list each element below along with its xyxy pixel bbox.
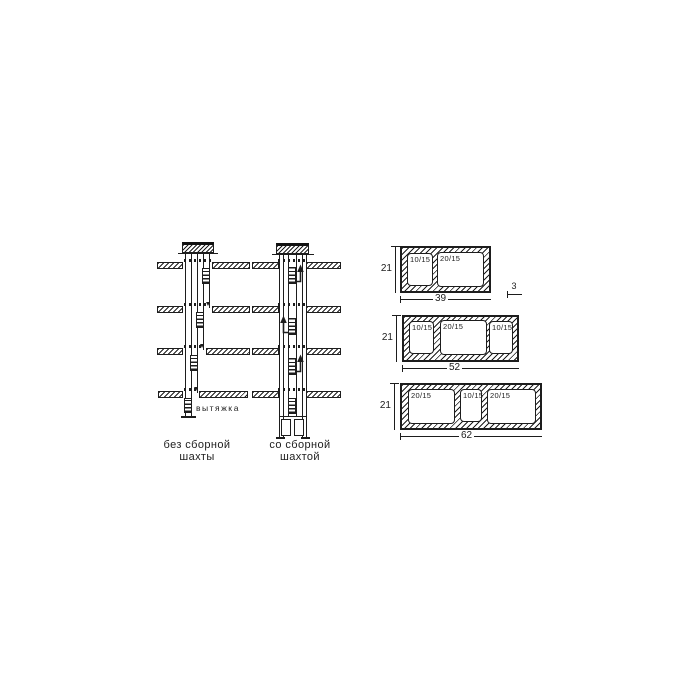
floor-slab <box>212 306 250 313</box>
duct-line <box>185 253 186 417</box>
exhaust-duct-end <box>181 416 196 418</box>
damper-hatch <box>288 398 296 414</box>
floor-slab <box>306 391 341 398</box>
floor-slab <box>252 391 279 398</box>
width-dimension-label: 62 <box>459 430 474 441</box>
airflow-arrow-icon <box>295 264 306 283</box>
vent-block-body: 10/15 20/15 10/15 <box>402 315 519 362</box>
left-shaft-caption-line2: шахты <box>147 451 247 463</box>
duct-joint-marks <box>278 303 308 306</box>
roof-cap <box>276 243 309 254</box>
floor-slab <box>306 348 341 355</box>
channel-size-label: 10/15 <box>410 255 430 264</box>
left-shaft-caption: без сборной шахты <box>147 439 247 463</box>
duct-joint-marks <box>184 345 204 348</box>
width-dimension-label: 52 <box>447 362 462 373</box>
floor-slab <box>306 262 341 269</box>
airflow-arrow-icon <box>278 315 289 334</box>
width-dimension-label: 39 <box>433 293 448 304</box>
floor-slab <box>206 348 250 355</box>
channel-opening: 10/15 <box>489 321 513 354</box>
exhaust-label: вытяжка <box>196 403 240 413</box>
height-dimension-line <box>395 246 396 293</box>
damper-hatch <box>202 268 210 284</box>
channel-opening: 10/15 <box>460 389 482 422</box>
base-chamber <box>294 419 304 436</box>
height-dimension-line <box>396 315 397 362</box>
channel-opening: 10/15 <box>407 253 433 286</box>
duct-joint-marks <box>184 388 198 391</box>
channel-size-label: 20/15 <box>490 391 510 400</box>
channel-size-label: 10/15 <box>492 323 512 332</box>
duct-joint-marks <box>184 259 212 262</box>
height-dimension-label: 21 <box>372 263 394 274</box>
channel-opening: 20/15 <box>408 389 455 424</box>
floor-slab <box>252 262 279 269</box>
height-dimension-label: 21 <box>371 400 393 411</box>
vent-block-body: 20/15 10/15 20/15 <box>400 383 542 430</box>
floor-slab <box>199 391 248 398</box>
right-shaft-caption-line2: шахтой <box>252 451 348 463</box>
figure-canvas: вытяжка без сборной шахты <box>0 0 700 700</box>
damper-hatch <box>184 398 192 413</box>
duct-joint-marks <box>184 303 210 306</box>
channel-opening: 20/15 <box>487 389 536 424</box>
floor-slab <box>157 348 183 355</box>
floor-slab <box>306 306 341 313</box>
channel-size-label: 20/15 <box>411 391 431 400</box>
channel-opening: 20/15 <box>437 252 484 287</box>
right-shaft-caption-line1: со сборной <box>252 439 348 451</box>
duct-joint-marks <box>278 345 308 348</box>
wall-thickness-dimension-line <box>507 294 522 295</box>
left-shaft-caption-line1: без сборной <box>147 439 247 451</box>
duct-joint-marks <box>278 259 308 262</box>
floor-slab <box>252 306 279 313</box>
floor-slab <box>157 306 183 313</box>
vent-block-body: 10/15 20/15 <box>400 246 491 293</box>
damper-hatch <box>190 355 198 371</box>
channel-size-label: 20/15 <box>440 254 460 263</box>
damper-hatch <box>288 318 296 335</box>
channel-size-label: 20/15 <box>443 322 463 331</box>
channel-opening: 10/15 <box>409 321 434 354</box>
airflow-arrow-icon <box>295 354 306 373</box>
height-dimension-label: 21 <box>373 332 395 343</box>
channel-size-label: 10/15 <box>463 391 483 400</box>
base-chamber <box>281 419 291 436</box>
floor-slab <box>252 348 279 355</box>
channel-size-label: 10/15 <box>412 323 432 332</box>
damper-hatch <box>196 312 204 328</box>
right-shaft-caption: со сборной шахтой <box>252 439 348 463</box>
duct-line <box>191 253 192 417</box>
duct-joint-marks <box>278 388 308 391</box>
floor-slab <box>212 262 250 269</box>
channel-opening: 20/15 <box>440 320 487 355</box>
height-dimension-line <box>394 383 395 430</box>
roof-cap <box>182 242 214 253</box>
chamber-top-line <box>280 416 306 417</box>
wall-thickness-label: 3 <box>507 281 521 292</box>
roof-slab-line <box>178 253 218 254</box>
floor-slab <box>158 391 183 398</box>
floor-slab <box>157 262 183 269</box>
